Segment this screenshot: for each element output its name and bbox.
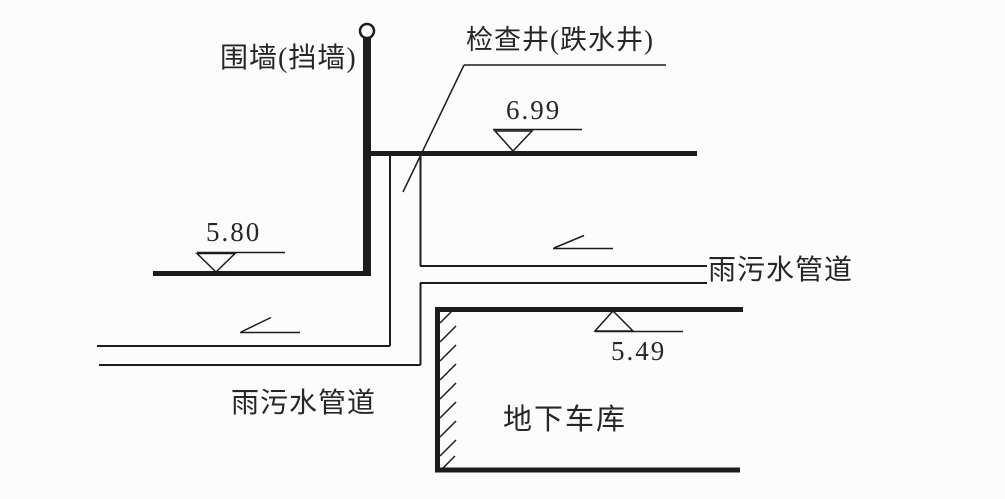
- underground-garage-label: 地下车库: [503, 406, 627, 435]
- inspection-well-leader-line: [403, 65, 666, 192]
- elevation-marker-upper-ground: [493, 130, 582, 152]
- elevation-value-upper-ground: 6.99: [506, 97, 561, 124]
- drainage-section-diagram: 围墙(挡墙) 检查井(跌水井) 6.99 5.80 5.49 雨污水管道 雨污水…: [0, 0, 1005, 499]
- garage-wall-hatching: [440, 308, 456, 470]
- flow-arrow-left: [240, 318, 300, 333]
- pipe-label-right: 雨污水管道: [708, 257, 853, 285]
- elevation-marker-garage-roof: [595, 311, 683, 332]
- retaining-wall-label: 围墙(挡墙): [220, 45, 357, 73]
- elevation-value-garage-roof: 5.49: [611, 338, 666, 365]
- elevation-value-left-ground: 5.80: [206, 219, 261, 246]
- flow-arrow-right: [553, 236, 613, 249]
- elevation-marker-left-ground: [197, 253, 285, 273]
- wall-ball-finial-icon: [360, 24, 374, 38]
- inspection-well-label: 检查井(跌水井): [466, 27, 654, 54]
- pipe-label-left: 雨污水管道: [231, 390, 376, 418]
